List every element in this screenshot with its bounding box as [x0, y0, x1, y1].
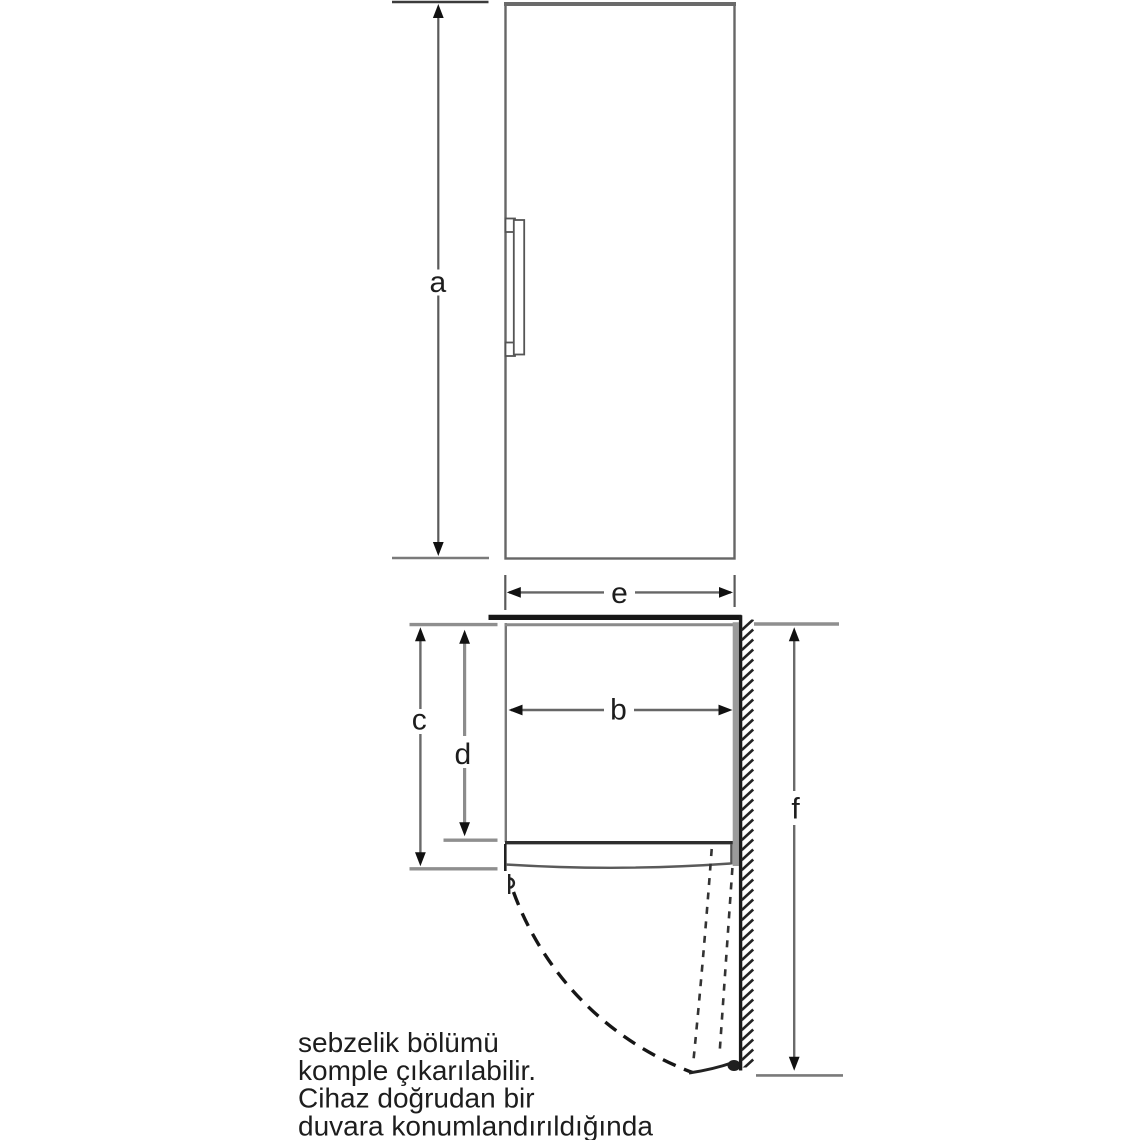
svg-text:c: c [412, 703, 427, 736]
svg-text:d: d [455, 738, 472, 771]
svg-text:Cihaz doğrudan bir: Cihaz doğrudan bir [298, 1083, 535, 1114]
svg-text:sebzelik bölümü: sebzelik bölümü [298, 1027, 499, 1058]
svg-text:e: e [611, 577, 628, 610]
svg-text:duvara konumlandırıldığında: duvara konumlandırıldığında [298, 1110, 653, 1140]
svg-text:f: f [791, 793, 800, 826]
svg-text:a: a [430, 266, 447, 299]
svg-text:komple çıkarılabilir.: komple çıkarılabilir. [298, 1055, 536, 1086]
svg-text:b: b [610, 694, 627, 727]
